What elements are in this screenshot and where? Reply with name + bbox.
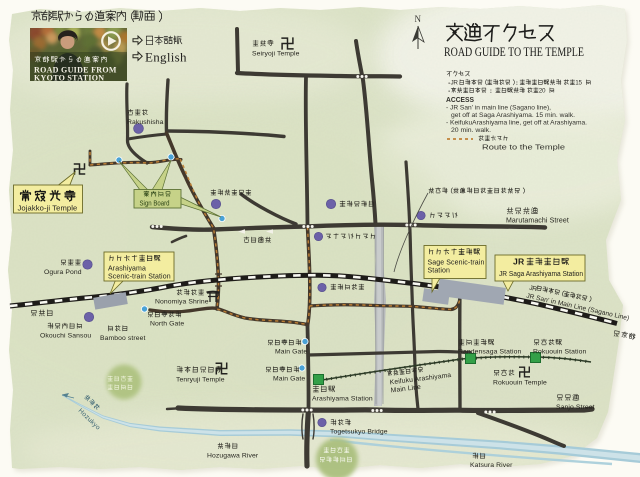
svg-text:JR: JR [513,257,525,267]
svg-text:Marutamachi Street: Marutamachi Street [506,218,569,225]
svg-text:Main Gate: Main Gate [275,349,307,356]
svg-text:North Gate: North Gate [150,321,184,328]
svg-text:Tenryuji Temple: Tenryuji Temple [176,377,225,384]
svg-text:Route to the Temple: Route to the Temple [482,145,565,152]
svg-text:N: N [415,14,422,24]
svg-text:Jojakko-ji Temple: Jojakko-ji Temple [18,204,78,213]
svg-text:15: 15 [575,80,582,87]
svg-text:get off at Saga Arashiyama. 15: get off at Saga Arashiyama. 15 min. walk… [451,112,575,119]
svg-text:JR: JR [451,80,459,87]
svg-text:Ogura Pond: Ogura Pond [44,269,82,276]
svg-text:Rokuouin Station: Rokuouin Station [533,349,586,356]
svg-text:Main Gate: Main Gate [273,376,305,383]
svg-text:Seiryoji Temple: Seiryoji Temple [252,51,300,58]
svg-text:Nonomiya Shrine: Nonomiya Shrine [155,299,209,306]
svg-text:Bamboo street: Bamboo street [100,335,146,342]
svg-text:Randensaga Station: Randensaga Station [458,349,522,356]
svg-text:Hozugawa River: Hozugawa River [207,453,259,460]
svg-text:20: 20 [539,88,546,95]
svg-text:Katsura River: Katsura River [470,462,513,469]
svg-text:Station: Station [428,267,451,274]
svg-text:Rokuouin Temple: Rokuouin Temple [493,380,547,387]
svg-text:Sign Board: Sign Board [140,201,170,208]
svg-text:Rakushisha: Rakushisha [127,119,164,126]
svg-text:ROAD GUIDE TO THE TEMPLE: ROAD GUIDE TO THE TEMPLE [444,45,584,59]
svg-text:- JR San' in main line (Sagano: - JR San' in main line (Sagano line), [446,105,551,112]
svg-text:Sanjo Street: Sanjo Street [556,404,595,411]
svg-text:English: English [145,50,187,65]
svg-text:- KeifukuArashiyama line, get: - KeifukuArashiyama line, get off at Ara… [446,120,587,127]
svg-text:Togetsukyo Bridge: Togetsukyo Bridge [330,429,388,436]
svg-text:Arashiyama: Arashiyama [108,266,146,273]
svg-text:Okouchi Sansou: Okouchi Sansou [40,333,91,340]
svg-text:20 min. walk.: 20 min. walk. [451,127,491,134]
svg-text:Sage Scenic-train: Sage Scenic-train [428,260,485,267]
svg-text:Arashiyama Station: Arashiyama Station [312,396,373,403]
svg-text:ACCESS: ACCESS [446,95,474,104]
svg-text:Scenic-train Station: Scenic-train Station [108,273,171,280]
svg-text:JR Saga Arashiyama Station: JR Saga Arashiyama Station [499,271,583,278]
